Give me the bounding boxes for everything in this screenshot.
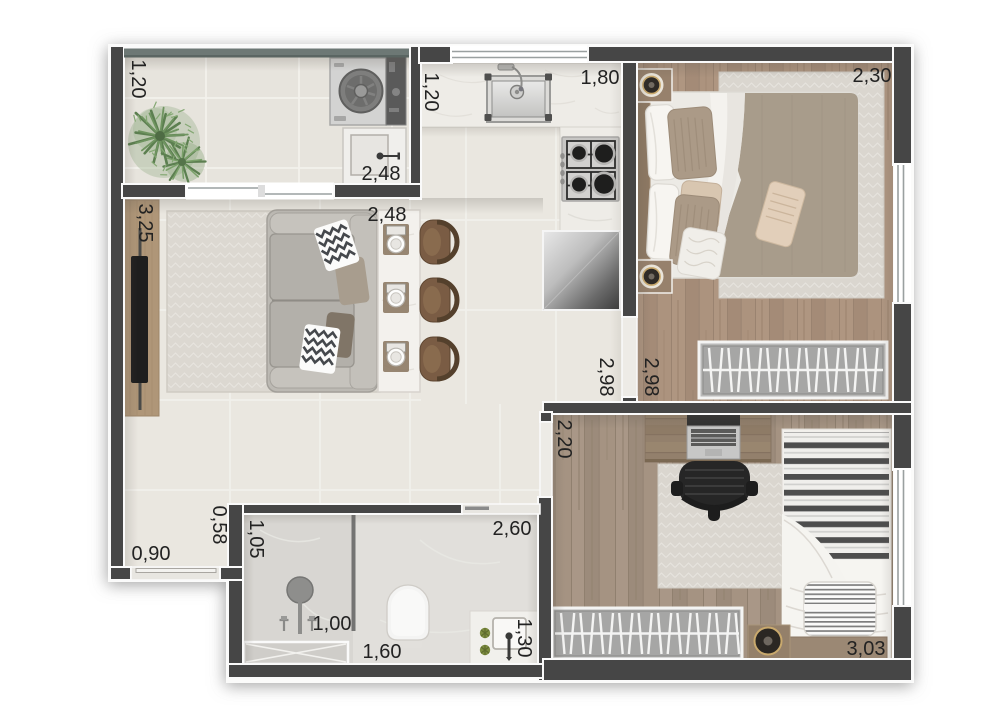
- svg-text:1,60: 1,60: [363, 641, 402, 663]
- svg-text:2,20: 2,20: [553, 420, 575, 459]
- svg-text:0,90: 0,90: [132, 543, 171, 565]
- svg-text:2,30: 2,30: [853, 65, 892, 87]
- svg-text:1,20: 1,20: [127, 60, 149, 99]
- svg-text:1,30: 1,30: [513, 619, 535, 658]
- svg-text:1,00: 1,00: [313, 613, 352, 635]
- svg-text:1,20: 1,20: [420, 73, 442, 112]
- svg-text:2,48: 2,48: [368, 204, 407, 226]
- svg-text:3,03: 3,03: [847, 638, 886, 660]
- svg-text:2,98: 2,98: [595, 358, 617, 397]
- svg-text:2,60: 2,60: [493, 518, 532, 540]
- svg-text:0,58: 0,58: [208, 506, 230, 545]
- svg-text:2,98: 2,98: [640, 358, 662, 397]
- svg-text:2,48: 2,48: [362, 163, 401, 185]
- svg-text:1,05: 1,05: [245, 520, 267, 559]
- svg-text:3,25: 3,25: [134, 204, 156, 243]
- svg-text:1,80: 1,80: [581, 67, 620, 89]
